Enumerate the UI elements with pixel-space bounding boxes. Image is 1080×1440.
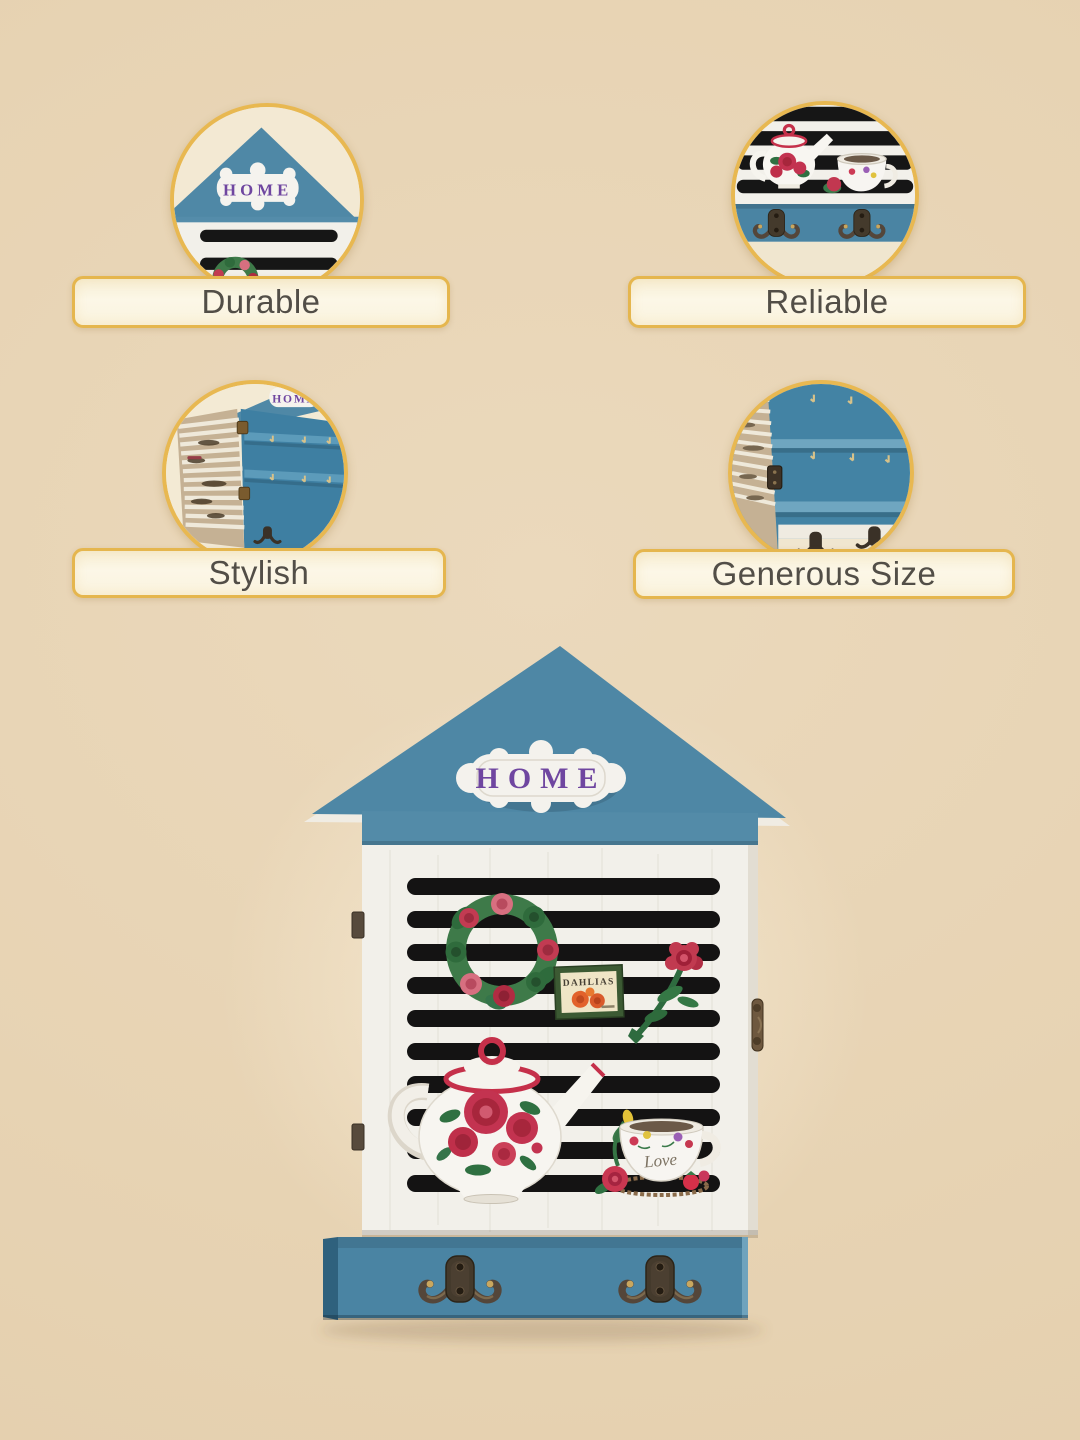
scene-plaque-text: HOME [223, 180, 292, 199]
hinge [768, 466, 782, 489]
seed-packet-text: DAHLIAS [563, 977, 615, 989]
feature-pill-generous-size: Generous Size [633, 549, 1015, 599]
feature-label: Stylish [209, 556, 310, 589]
feature-label: Durable [201, 285, 320, 318]
latch [752, 999, 763, 1051]
scene-door-back [177, 409, 245, 548]
plaque-text: HOME [476, 762, 607, 795]
seed-packet: DAHLIAS [554, 965, 624, 1019]
feature-label: Generous Size [712, 557, 937, 590]
hooks-detail-scene [735, 105, 915, 285]
product-image: HOME [290, 630, 790, 1350]
product-shadow [320, 1318, 764, 1342]
feature-label: Reliable [765, 285, 888, 318]
feature-pill-stylish: Stylish [72, 548, 446, 598]
product-infographic: HOME Durable [0, 0, 1080, 1440]
bottom-shelf [323, 1230, 758, 1320]
feature-pill-reliable: Reliable [628, 276, 1026, 328]
detail-circle-roof: HOME [170, 103, 364, 297]
open-door-scene: HOME [166, 384, 344, 562]
detail-circle-interior [728, 380, 914, 566]
rose-bloom [665, 942, 703, 971]
detail-circle-hooks [731, 101, 919, 289]
scene-interior [241, 409, 344, 551]
key-holder-cabinet: HOME [290, 630, 790, 1350]
hinge-top [352, 912, 364, 938]
scene-home-plaque: HOME [217, 162, 299, 210]
teacup-text: Love [642, 1150, 678, 1172]
roof-detail-scene: HOME [174, 107, 360, 293]
interior-scene [732, 384, 910, 562]
detail-circle-open-door: HOME [162, 380, 348, 566]
feature-pill-durable: Durable [72, 276, 450, 328]
scene-plaque-text: HOME [272, 393, 316, 406]
hinge-bottom [352, 1124, 364, 1150]
